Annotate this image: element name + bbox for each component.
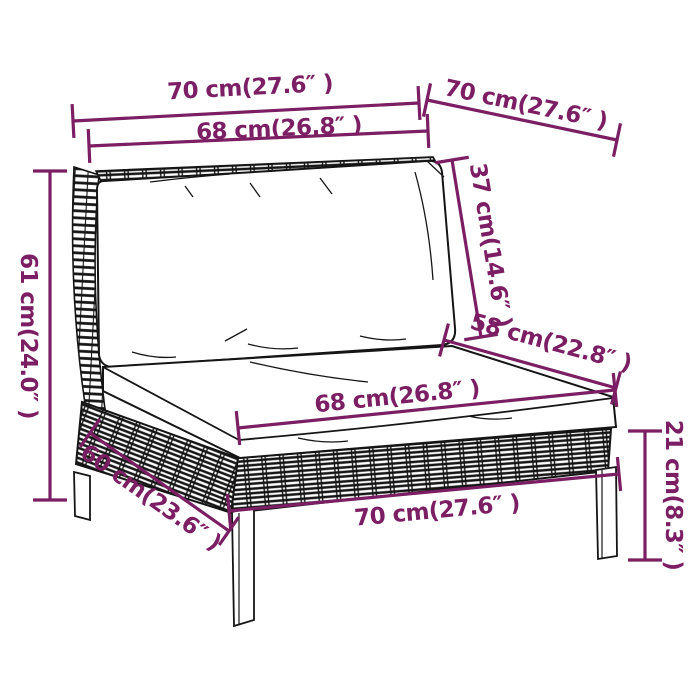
dim-backrest-width-label: 68 cm(26.8″ ): [196, 112, 363, 145]
dim-backrest-width-tick-start: [88, 129, 89, 163]
dim-leg-height-label: 21 cm(8.3″ ): [660, 420, 686, 570]
dim-top-width-tick-start: [72, 104, 74, 138]
dim-top-width-tick-end: [418, 86, 420, 120]
dim-top-width-label: 70 cm(27.6″ ): [167, 71, 334, 106]
dim-total-height-label: 61 cm(24.0″ ): [15, 253, 41, 419]
leg-front-left: [232, 507, 254, 626]
dim-top-depth-label: 70 cm(27.6″ ): [442, 75, 610, 135]
dim-base-width-tick-end: [617, 457, 620, 491]
product-dimension-diagram: 70 cm(27.6″ ) 70 cm(27.6″ ) 68 cm(26.8″ …: [0, 0, 700, 700]
leg-rear-left: [74, 472, 90, 520]
dim-leg-height: [628, 431, 662, 560]
dim-backrest-width-tick-end: [427, 114, 428, 148]
dim-backrest-height-label: 37 cm(14.6″ ): [464, 161, 516, 329]
diagram-canvas: 70 cm(27.6″ ) 70 cm(27.6″ ) 68 cm(26.8″ …: [0, 0, 700, 700]
back-cushion: [97, 161, 455, 367]
leg-front-right: [596, 467, 617, 559]
